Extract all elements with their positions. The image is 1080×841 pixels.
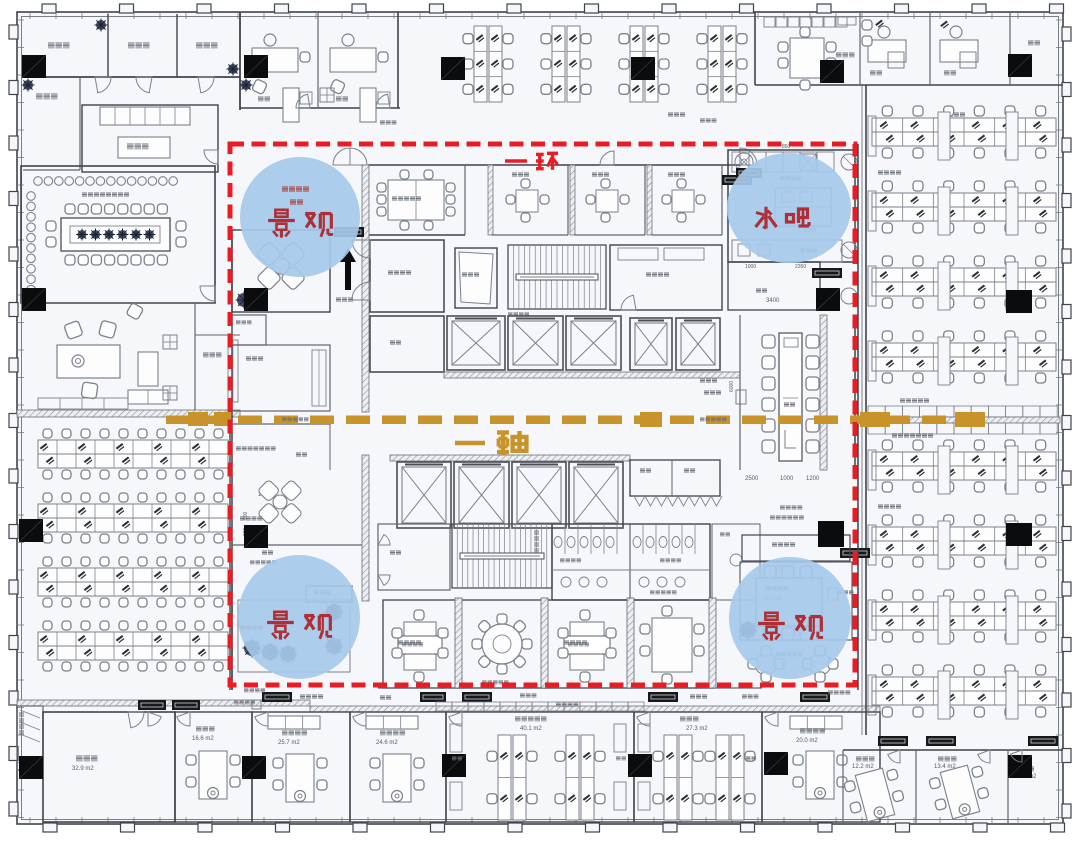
svg-text:6000: 6000 (729, 381, 735, 392)
svg-text:20.0 m2: 20.0 m2 (796, 738, 818, 744)
svg-text:2500: 2500 (745, 476, 759, 482)
svg-text:27.3 m2: 27.3 m2 (686, 726, 708, 732)
svg-text:3400: 3400 (766, 298, 780, 304)
svg-text:24.6 m2: 24.6 m2 (376, 740, 398, 746)
svg-text:32.9 m2: 32.9 m2 (72, 766, 94, 772)
svg-text:2350: 2350 (795, 264, 806, 270)
svg-text:25.7 m2: 25.7 m2 (278, 740, 300, 746)
svg-text:12.2 m2: 12.2 m2 (852, 764, 874, 770)
svg-text:40.1 m2: 40.1 m2 (520, 726, 542, 732)
svg-text:16.6 m2: 16.6 m2 (192, 736, 214, 742)
svg-text:1000: 1000 (745, 264, 756, 270)
svg-text:900: 900 (243, 511, 249, 520)
svg-text:1000: 1000 (780, 476, 794, 482)
svg-text:1200: 1200 (806, 476, 820, 482)
